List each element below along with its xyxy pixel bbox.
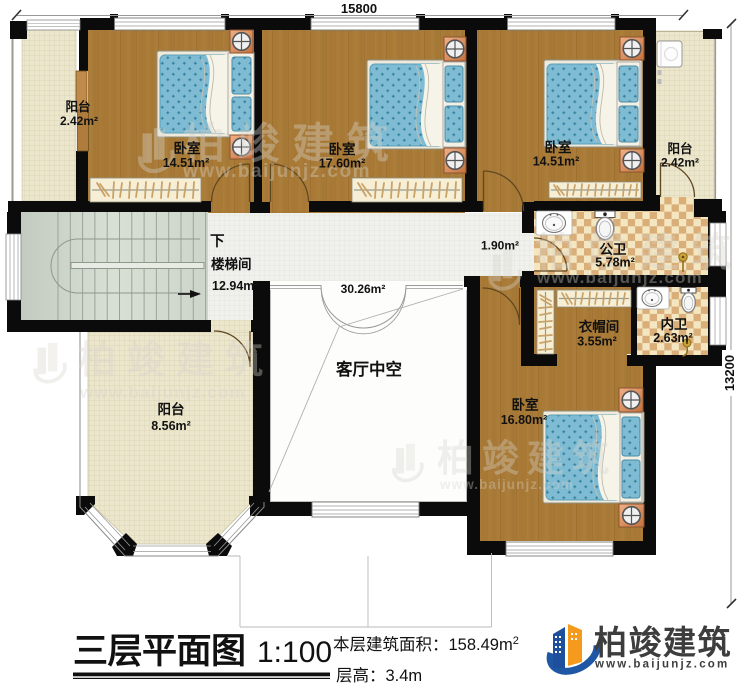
svg-text:17.60m²: 17.60m²: [319, 157, 366, 171]
svg-text:柏竣建筑: 柏竣建筑: [78, 340, 274, 382]
svg-text:16.80m²: 16.80m²: [501, 413, 548, 427]
svg-text:2.42m²: 2.42m²: [60, 114, 98, 128]
svg-text:客厅中空: 客厅中空: [335, 359, 402, 379]
svg-text:8.56m²: 8.56m²: [151, 419, 191, 433]
svg-text:卧室: 卧室: [512, 397, 540, 413]
svg-text:楼梯间: 楼梯间: [211, 256, 252, 272]
svg-text:内卫: 内卫: [661, 316, 689, 332]
svg-text:柏竣建筑: 柏竣建筑: [594, 624, 732, 661]
svg-text:阳台: 阳台: [65, 99, 90, 114]
svg-text:阳台: 阳台: [158, 401, 185, 417]
svg-text:2.63m²: 2.63m²: [653, 331, 693, 345]
svg-text:卧室: 卧室: [174, 140, 201, 156]
svg-text:1.90m²: 1.90m²: [481, 239, 519, 253]
svg-text:阳台: 阳台: [667, 141, 692, 156]
svg-text:14.51m²: 14.51m²: [533, 155, 580, 169]
svg-text:层高：3.4m: 层高：3.4m: [336, 666, 422, 685]
svg-text:www.baijunjz.com: www.baijunjz.com: [594, 659, 729, 671]
svg-text:柏竣建筑: 柏竣建筑: [437, 437, 617, 479]
svg-text:30.26m²: 30.26m²: [341, 282, 386, 296]
svg-text:www.baijunjz.com: www.baijunjz.com: [536, 268, 703, 287]
svg-text:1:100: 1:100: [257, 636, 332, 669]
svg-text:下: 下: [210, 233, 225, 250]
svg-text:2.42m²: 2.42m²: [661, 156, 699, 170]
svg-text:13200: 13200: [722, 355, 737, 391]
svg-text:本层建筑面积：158.49m2: 本层建筑面积：158.49m2: [333, 635, 519, 654]
svg-text:卧室: 卧室: [329, 141, 356, 157]
svg-text:www.baijunjz.com: www.baijunjz.com: [79, 383, 246, 402]
svg-text:15800: 15800: [341, 1, 377, 16]
svg-text:5.78m²: 5.78m²: [595, 256, 635, 270]
svg-text:衣帽间: 衣帽间: [579, 319, 620, 335]
svg-text:三层平面图: 三层平面图: [73, 632, 246, 671]
svg-text:3.55m²: 3.55m²: [577, 335, 617, 349]
svg-text:www.baijunjz.com: www.baijunjz.com: [439, 477, 574, 492]
svg-text:柏竣建筑: 柏竣建筑: [183, 120, 401, 167]
svg-text:12.94m²: 12.94m²: [212, 279, 259, 293]
svg-text:卧室: 卧室: [545, 139, 573, 155]
svg-text:14.51m²: 14.51m²: [163, 156, 210, 170]
